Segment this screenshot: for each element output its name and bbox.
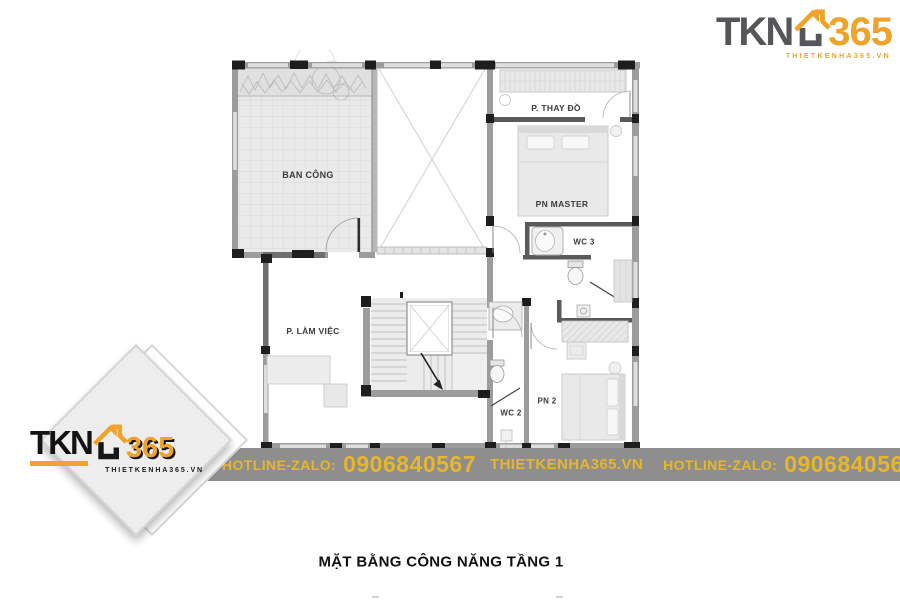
room-label-pn-2: PN 2	[538, 397, 557, 406]
room-label-p-thay-do: P. THAY ĐỒ	[531, 103, 581, 113]
website-text: THIETKENHA365.VN	[490, 456, 643, 473]
plan-title: MẶT BẰNG CÔNG NĂNG TẦNG 1	[319, 554, 564, 571]
wardrobe-thay-do	[500, 70, 627, 106]
toilet-icon	[568, 261, 583, 285]
door-leaf	[491, 388, 520, 406]
floor-plan	[228, 50, 648, 455]
brand-underline	[30, 461, 88, 466]
hotline-banner: HOTLINE-ZALO: 0906840567 THIETKENHA365.V…	[160, 448, 900, 481]
phone-number-2: 0906840567	[784, 451, 900, 478]
lamp-icon	[611, 126, 622, 137]
watermark-logo-top: TKN 365 THIETKENHA365.VN	[716, 6, 892, 60]
room-label-wc-3: WC 3	[573, 238, 594, 247]
balcony-area	[238, 66, 372, 252]
phone-number-1: 0906840567	[343, 451, 476, 478]
pillow-icon	[562, 136, 589, 149]
room-label-pn-master: PN MASTER	[536, 199, 589, 209]
door-leaf	[590, 282, 616, 298]
wc2-fixtures	[489, 302, 522, 448]
work-room-furniture	[267, 356, 347, 407]
diamond-logo-content: TKN 365 THIETKENHA365.VN	[30, 424, 210, 474]
void-railing	[377, 247, 487, 254]
sink-icon	[577, 305, 590, 317]
desk-icon	[267, 356, 330, 384]
dimension-tick	[372, 596, 379, 598]
pn2-furniture	[531, 321, 628, 440]
brand-tkn-text: TKN	[30, 427, 92, 458]
brand-365-text: 365	[126, 434, 174, 463]
lamp-icon	[609, 362, 621, 374]
door-arc	[531, 323, 557, 349]
hotline-label-2: HOTLINE-ZALO:	[663, 457, 777, 473]
door-master	[493, 226, 520, 253]
dimension-tick	[556, 596, 563, 598]
door-thay-do	[603, 91, 630, 118]
house-icon	[92, 424, 128, 462]
brand-tkn-text: TKN	[716, 12, 792, 52]
chair-icon	[324, 384, 347, 407]
hotline-label-1: HOTLINE-ZALO:	[222, 457, 336, 473]
brand-365-text: 365	[828, 12, 892, 52]
room-label-p-lam-viec: P. LÀM VIỆC	[286, 326, 339, 336]
brand-tagline: THIETKENHA365.VN	[30, 467, 210, 474]
void-area	[377, 69, 487, 254]
bed-icon	[562, 374, 625, 440]
stairs	[371, 298, 487, 390]
room-label-ban-cong: BAN CÔNG	[282, 170, 333, 180]
pillow-icon	[527, 136, 554, 149]
page: TKN 365 THIETKENHA365.VN	[0, 0, 900, 603]
room-label-wc-2: WC 2	[500, 409, 521, 418]
toilet-icon	[490, 360, 504, 383]
house-icon	[793, 6, 831, 52]
stool-icon	[500, 95, 511, 106]
brand-tagline: THIETKENHA365.VN	[716, 53, 892, 60]
